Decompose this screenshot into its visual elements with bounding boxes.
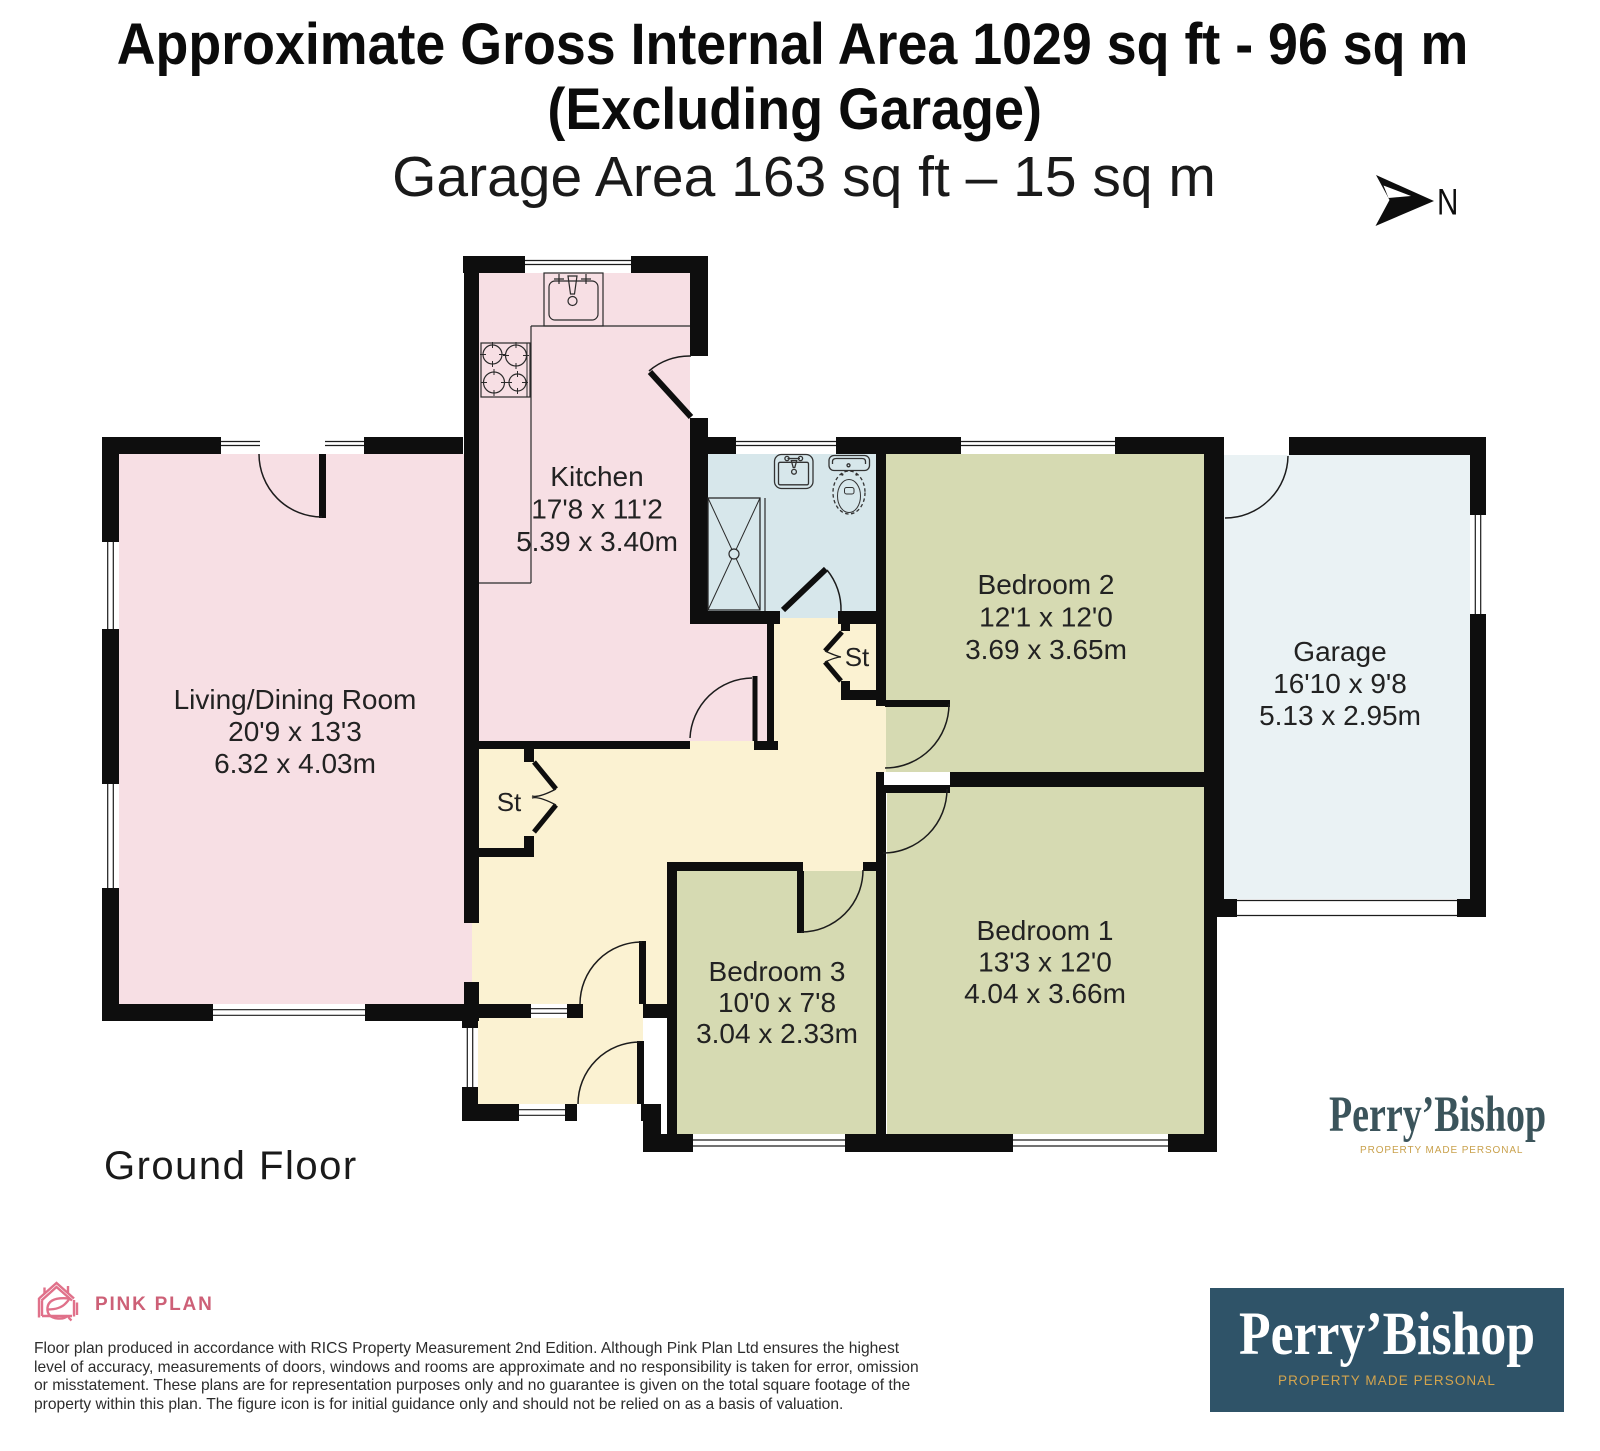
- svg-text:17'8 x 11'2: 17'8 x 11'2: [531, 494, 663, 525]
- svg-text:10'0 x 7'8: 10'0 x 7'8: [718, 987, 836, 1018]
- svg-text:Bedroom 3: Bedroom 3: [709, 956, 846, 987]
- svg-text:6.32 x 4.03m: 6.32 x 4.03m: [214, 748, 376, 779]
- svg-text:16'10 x 9'8: 16'10 x 9'8: [1273, 668, 1407, 699]
- svg-text:Kitchen: Kitchen: [550, 461, 643, 492]
- svg-text:St: St: [497, 787, 522, 817]
- svg-text:3.04 x 2.33m: 3.04 x 2.33m: [696, 1018, 858, 1049]
- svg-text:St: St: [845, 642, 870, 672]
- svg-text:Garage: Garage: [1293, 636, 1386, 667]
- svg-text:13'3 x 12'0: 13'3 x 12'0: [978, 947, 1112, 978]
- svg-text:3.69 x 3.65m: 3.69 x 3.65m: [965, 634, 1127, 665]
- svg-text:5.13 x 2.95m: 5.13 x 2.95m: [1259, 700, 1421, 731]
- svg-text:5.39 x 3.40m: 5.39 x 3.40m: [516, 526, 678, 557]
- svg-text:Bedroom 2: Bedroom 2: [978, 569, 1115, 600]
- svg-text:4.04 x 3.66m: 4.04 x 3.66m: [964, 978, 1126, 1009]
- svg-text:Bedroom 1: Bedroom 1: [977, 915, 1114, 946]
- svg-text:12'1 x 12'0: 12'1 x 12'0: [979, 602, 1113, 633]
- svg-text:20'9 x 13'3: 20'9 x 13'3: [228, 716, 362, 747]
- svg-text:Living/Dining Room: Living/Dining Room: [174, 684, 417, 715]
